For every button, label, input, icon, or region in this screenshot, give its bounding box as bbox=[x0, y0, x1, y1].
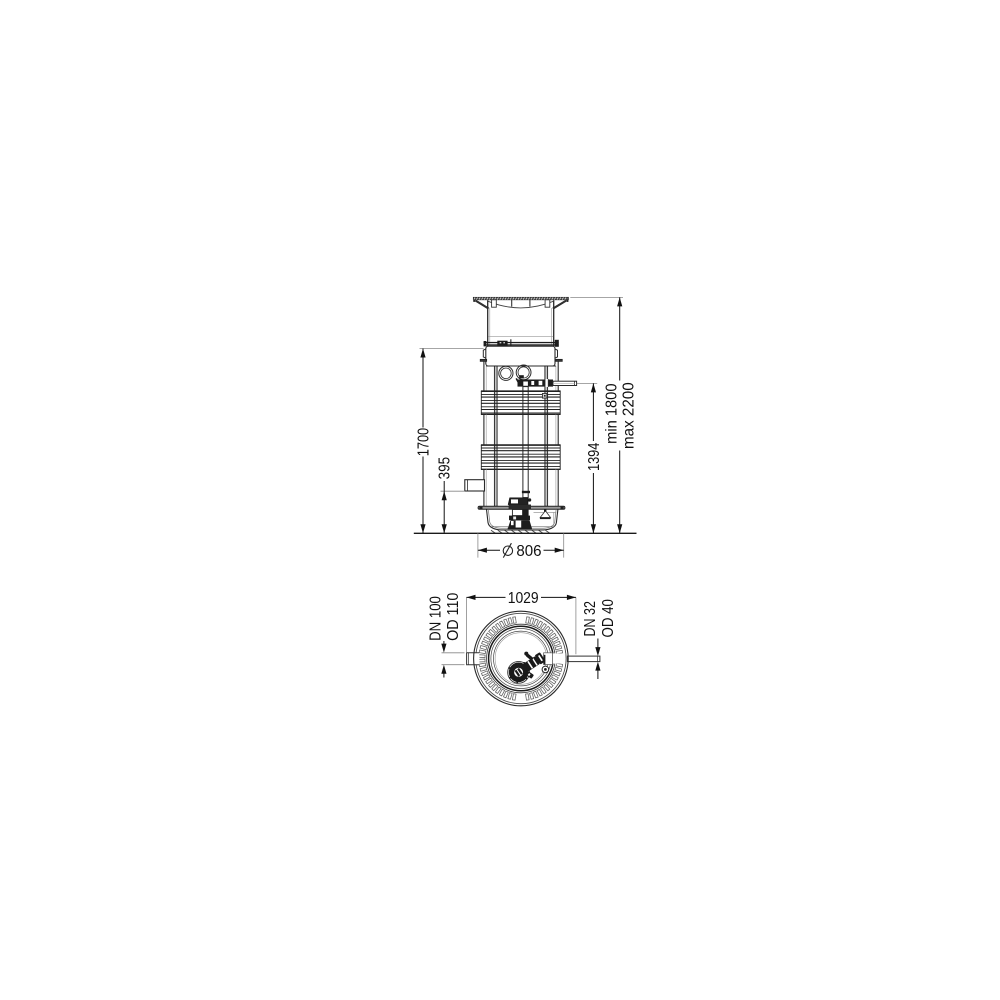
svg-text:1029: 1029 bbox=[508, 590, 539, 607]
svg-text:806: 806 bbox=[516, 543, 541, 560]
svg-text:395: 395 bbox=[436, 457, 453, 480]
svg-text:1394: 1394 bbox=[586, 442, 603, 471]
svg-text:OD 110: OD 110 bbox=[445, 592, 462, 641]
svg-text:min 1800: min 1800 bbox=[603, 383, 620, 444]
svg-text:DN 100: DN 100 bbox=[427, 596, 444, 641]
svg-text:DN 32: DN 32 bbox=[582, 601, 599, 636]
svg-text:OD 40: OD 40 bbox=[600, 599, 617, 638]
svg-text:max 2200: max 2200 bbox=[621, 382, 638, 449]
svg-text:1700: 1700 bbox=[415, 428, 432, 457]
